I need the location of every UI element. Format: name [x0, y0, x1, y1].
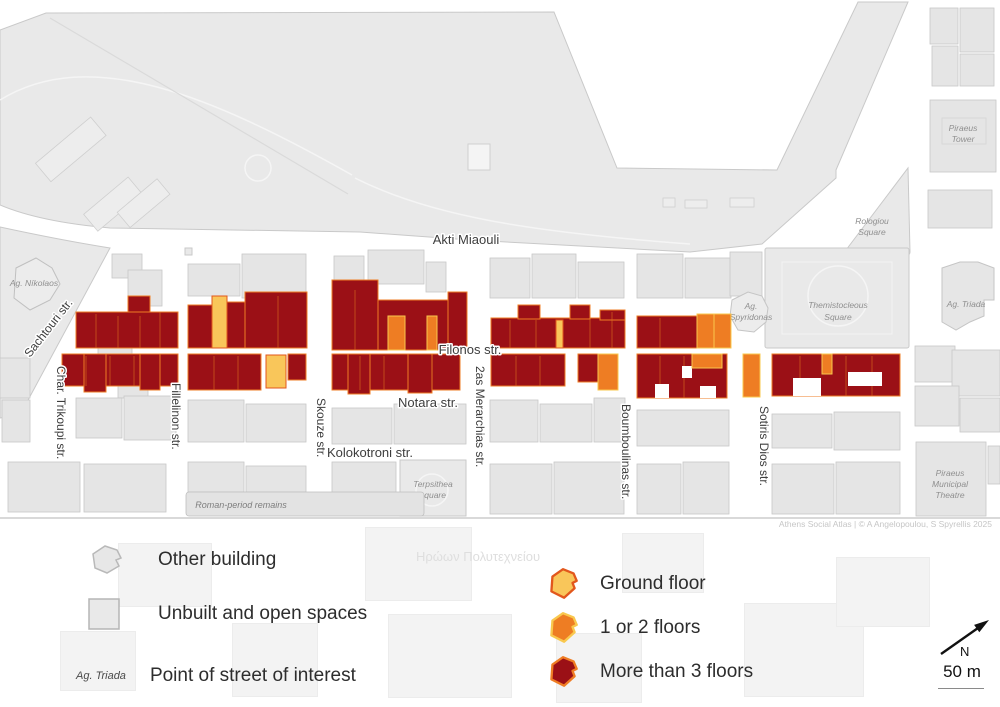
poi-sample-label: Ag. Triada: [76, 670, 126, 682]
ground-floor-swatch: [544, 566, 582, 602]
street-label-kolokotroni: Kolokotroni str.: [327, 445, 413, 460]
street-label-fillelinon: Fillelinon str.: [169, 383, 183, 450]
svg-text:Piraeus: Piraeus: [936, 468, 966, 478]
ghost-block: [365, 527, 472, 601]
themistocleous-square: Themistocleous Square: [765, 248, 909, 348]
street-label-boumboulinas: Boumboulinas str.: [619, 404, 633, 499]
map-figure: Rologiou Square Piraeus Tower Ag. Níkola…: [0, 0, 1000, 707]
legend-item-poi: Ag. Triada Point of street of interest: [76, 665, 356, 687]
svg-text:Spyridonas: Spyridonas: [730, 312, 773, 322]
scale-bar-line: [938, 688, 984, 689]
1-or-2-floors-label: 1 or 2 floors: [600, 617, 700, 639]
ghost-street-label: Ηρώων Πολυτεχνείου: [416, 549, 540, 564]
1-or-2-floors-swatch: [544, 610, 582, 646]
svg-text:Ag. Triada: Ag. Triada: [946, 299, 986, 309]
legend-item-other-building: Other building: [82, 542, 276, 578]
ghost-block: [388, 614, 512, 698]
poi-label: Point of street of interest: [150, 665, 356, 687]
unbuilt-label: Unbuilt and open spaces: [158, 603, 367, 625]
svg-text:Square: Square: [858, 227, 886, 237]
street-label-akti-miaouli: Akti Miaouli: [433, 232, 500, 247]
svg-text:Municipal: Municipal: [932, 479, 969, 489]
map-canvas: Rologiou Square Piraeus Tower Ag. Níkola…: [0, 0, 1000, 518]
svg-text:Rologiou: Rologiou: [855, 216, 889, 226]
street-label-sotiris-dios: Sotiris Dios str.: [757, 406, 771, 486]
roman-remains-block: Roman-period remains: [186, 492, 424, 516]
legend-item-unbuilt: Unbuilt and open spaces: [88, 598, 367, 630]
municipal-theatre: Piraeus Municipal Theatre: [916, 442, 986, 516]
legend-item-1-or-2-floors: 1 or 2 floors: [544, 610, 700, 646]
port-quay-area: [0, 2, 908, 252]
svg-text:Piraeus: Piraeus: [949, 123, 979, 133]
ghost-block: [836, 557, 930, 627]
street-label-merarchias: 2as Merarchias str.: [473, 366, 487, 467]
legend-panel: Ηρώων Πολυτεχνείου Other building Unbuil…: [0, 517, 1000, 707]
street-label-filonos: Filonos str.: [439, 342, 502, 357]
street-label-notara: Notara str.: [398, 395, 458, 410]
other-building-label: Other building: [158, 549, 276, 571]
svg-text:Themistocleous: Themistocleous: [808, 300, 868, 310]
svg-text:Square: Square: [824, 312, 852, 322]
more-than-3-floors-swatch: [544, 654, 582, 690]
svg-text:Terpsithea: Terpsithea: [413, 479, 453, 489]
svg-text:Ag. Níkolaos: Ag. Níkolaos: [9, 278, 59, 288]
other-building-swatch: [82, 542, 132, 578]
legend-item-ground-floor: Ground floor: [544, 566, 706, 602]
ground-floor-label: Ground floor: [600, 573, 706, 595]
unbuilt-swatch: [88, 598, 120, 630]
ag-triada-church: Ag. Triada: [942, 262, 994, 330]
top-right-blocks: Piraeus Tower: [928, 8, 996, 228]
street-label-char-trikoupi: Char. Trikoupi str.: [54, 366, 68, 459]
rologiou-square: Rologiou Square: [845, 168, 910, 256]
north-arrow-icon: N: [920, 602, 1000, 660]
north-label: N: [960, 644, 969, 659]
more-than-3-floors-label: More than 3 floors: [600, 661, 753, 683]
svg-text:Theatre: Theatre: [935, 490, 965, 500]
scale-bar-label: 50 m: [920, 662, 1000, 682]
svg-text:Roman-period remains: Roman-period remains: [195, 500, 287, 510]
svg-text:Tower: Tower: [952, 134, 976, 144]
street-label-skouze: Skouze str.: [314, 398, 328, 457]
legend-item-more-than-3-floors: More than 3 floors: [544, 654, 753, 690]
svg-text:Ag.: Ag.: [744, 301, 758, 311]
